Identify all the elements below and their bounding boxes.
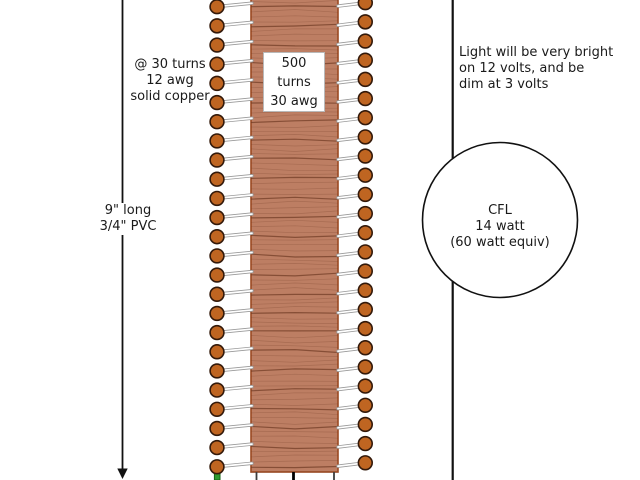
primary-wire-dot — [358, 34, 372, 48]
primary-wire-dot — [358, 456, 372, 470]
primary-wire-dot — [358, 53, 372, 67]
primary-wire-dot — [358, 130, 372, 144]
primary-wire-dot — [210, 287, 224, 301]
primary-wire-dot — [358, 149, 372, 163]
pvc-dimension-label: 9" long 3/4" PVC — [68, 203, 188, 235]
primary-wire-dot — [358, 92, 372, 106]
primary-wire-dot — [210, 249, 224, 263]
primary-wire-dot — [210, 460, 224, 474]
primary-wire-dot — [358, 360, 372, 374]
cfl-bulb-label-line: 14 watt — [425, 219, 575, 235]
secondary-coil-label-line: 30 awg — [264, 92, 324, 111]
pvc-dimension-label-line: 9" long — [102, 203, 154, 219]
primary-coil-label-line: @ 30 turns — [85, 57, 255, 73]
brightness-note-line: on 12 volts, and be — [459, 61, 640, 77]
winding-texture-line — [251, 313, 338, 314]
winding-texture-line — [251, 294, 338, 295]
primary-wire-dot — [210, 441, 224, 455]
arrow-down-icon — [117, 469, 127, 480]
primary-wire-dot — [210, 345, 224, 359]
primary-wire-dot — [210, 211, 224, 225]
primary-wire-dot — [358, 283, 372, 297]
brightness-note: Light will be very bright on 12 volts, a… — [459, 45, 640, 93]
primary-wire-dot — [358, 418, 372, 432]
primary-wire-dot — [358, 322, 372, 336]
primary-wire-dot — [210, 307, 224, 321]
cfl-bulb-label-line: (60 watt equiv) — [425, 235, 575, 251]
brightness-note-line: Light will be very bright — [459, 45, 640, 61]
primary-wire-dot — [358, 379, 372, 393]
primary-wire-dot — [358, 207, 372, 221]
primary-wire-dot — [358, 264, 372, 278]
primary-wire-dot — [358, 398, 372, 412]
primary-wire-dot — [358, 245, 372, 259]
primary-wire-dot — [358, 0, 372, 10]
primary-coil-label-line: 12 awg — [85, 73, 255, 89]
primary-wire-dot — [210, 402, 224, 416]
primary-wire-dot — [210, 192, 224, 206]
primary-coil-label: @ 30 turns 12 awg solid copper — [85, 57, 255, 105]
primary-wire-dot — [358, 111, 372, 125]
primary-wire-dot — [210, 422, 224, 436]
primary-wire-dot — [358, 15, 372, 29]
primary-wire-dot — [210, 172, 224, 186]
primary-wire-dot — [358, 303, 372, 317]
primary-coil-label-line: solid copper — [85, 89, 255, 105]
secondary-coil-label-line: turns — [264, 73, 324, 92]
primary-wire-dot — [358, 341, 372, 355]
cfl-bulb-label-line: CFL — [425, 203, 575, 219]
secondary-coil-label-line: 500 — [264, 54, 324, 73]
primary-wire-dot — [358, 72, 372, 86]
primary-wire-dot — [210, 134, 224, 148]
coil-lamp-diagram: @ 30 turns 12 awg solid copper 500 turns… — [0, 0, 640, 480]
primary-wire-dot — [210, 383, 224, 397]
pvc-dimension-label-line: 3/4" PVC — [97, 219, 160, 235]
primary-wire-dot — [210, 268, 224, 282]
primary-wire-dot — [358, 188, 372, 202]
primary-wire-dot — [210, 115, 224, 129]
primary-wire-dot — [210, 38, 224, 52]
primary-wire-dot — [210, 153, 224, 167]
brightness-note-line: dim at 3 volts — [459, 77, 640, 93]
primary-wire-dot — [210, 326, 224, 340]
primary-wire-dot — [210, 230, 224, 244]
secondary-coil-label-box: 500 turns 30 awg — [263, 52, 325, 112]
primary-wire-dot — [210, 364, 224, 378]
primary-wire-dot — [210, 19, 224, 33]
primary-wire-dot — [210, 0, 224, 14]
primary-wire-dot — [358, 437, 372, 451]
primary-wire-dot — [358, 168, 372, 182]
cfl-bulb-label: CFL 14 watt (60 watt equiv) — [425, 203, 575, 251]
primary-wire-dot — [358, 226, 372, 240]
